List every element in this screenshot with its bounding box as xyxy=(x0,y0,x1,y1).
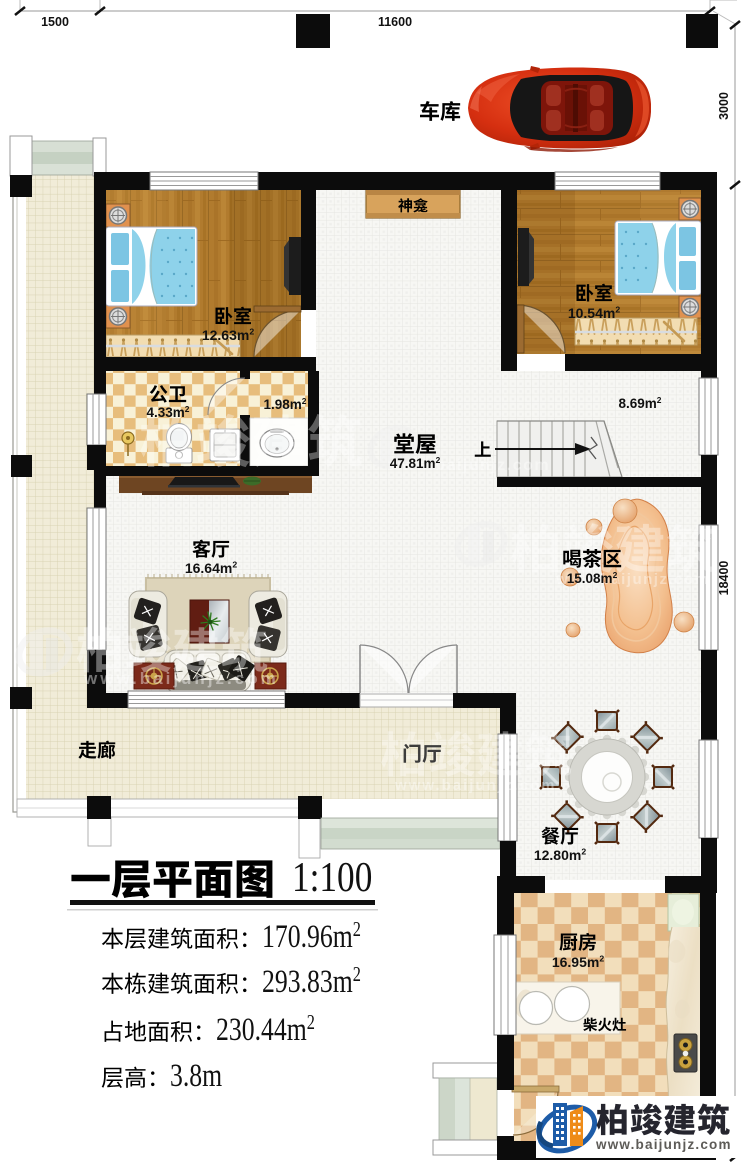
svg-text:3.8m: 3.8m xyxy=(170,1058,222,1094)
svg-text:1500: 1500 xyxy=(41,15,69,29)
svg-text:11600: 11600 xyxy=(378,15,412,29)
svg-text:47.81m2: 47.81m2 xyxy=(390,455,441,471)
svg-text:16.64m2: 16.64m2 xyxy=(185,560,237,576)
svg-text:www.baijunjz.com: www.baijunjz.com xyxy=(595,1137,732,1152)
svg-text:1.98m2: 1.98m2 xyxy=(264,396,307,412)
svg-text:www.baijunjz.com: www.baijunjz.com xyxy=(83,669,279,688)
svg-text:12.80m2: 12.80m2 xyxy=(534,847,586,863)
svg-text:230.44m2: 230.44m2 xyxy=(216,1011,315,1048)
svg-text:10.54m2: 10.54m2 xyxy=(568,305,620,321)
svg-text:4.33m2: 4.33m2 xyxy=(147,404,190,420)
svg-text:8.69m2: 8.69m2 xyxy=(619,395,662,411)
svg-text:170.96m2: 170.96m2 xyxy=(262,918,361,955)
svg-text:18400: 18400 xyxy=(717,561,731,596)
svg-text:3000: 3000 xyxy=(717,92,731,120)
svg-text:12.63m2: 12.63m2 xyxy=(202,327,254,343)
svg-text:1:100: 1:100 xyxy=(292,854,372,901)
svg-text:293.83m2: 293.83m2 xyxy=(262,963,361,1000)
svg-text:www.baijunjz.com: www.baijunjz.com xyxy=(394,777,556,794)
svg-text:16.95m2: 16.95m2 xyxy=(552,954,604,970)
svg-text:15.08m2: 15.08m2 xyxy=(567,570,618,586)
